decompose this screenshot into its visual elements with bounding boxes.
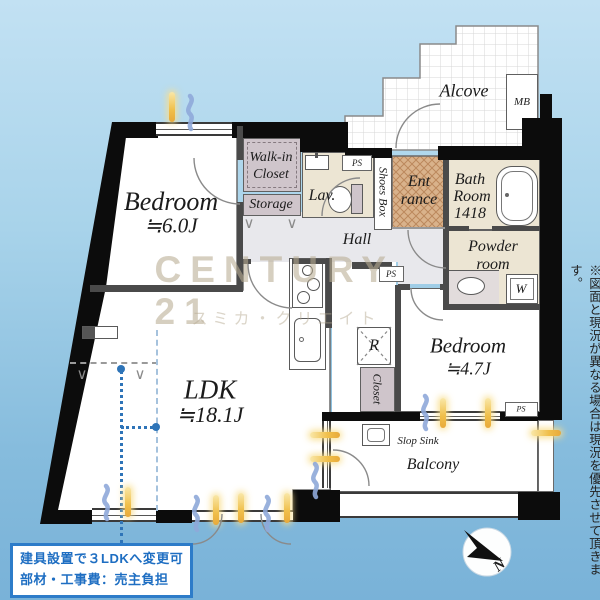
bath-label-2: Room <box>453 188 490 206</box>
future-wall-node-a <box>117 365 125 373</box>
wall-top-a <box>112 122 158 138</box>
wall-ldk-bottom <box>156 510 192 523</box>
wall-bath-left <box>443 160 449 230</box>
balcony-label: Balcony <box>407 456 459 474</box>
bathtub <box>496 166 538 226</box>
entrance-label-1: Ent <box>408 173 430 191</box>
light-icon <box>485 398 491 428</box>
storage-label: Storage <box>249 197 293 213</box>
compass-north-label: N <box>490 556 509 576</box>
lavatory-label: Lav. <box>309 187 336 205</box>
wall-balcony-top-a <box>322 412 420 421</box>
powder-label-1: Powder <box>468 238 518 256</box>
entrance-label-2: rance <box>401 191 437 209</box>
powder-basin-counter <box>447 270 499 304</box>
bedroom-second-label: Bedroom <box>430 334 506 359</box>
conversion-notice-line1: 建具設置で３LDKへ変更可 <box>20 549 183 570</box>
wall-corner-se <box>518 492 560 520</box>
hanger-mark: ∨ <box>135 365 146 383</box>
entrance-step <box>392 227 445 229</box>
disclaimer-note: ※図面と現況が異なる場合は現況を優先させて頂きます。 <box>566 264 600 600</box>
shoes-box-label: Shoes Box <box>376 167 391 217</box>
walk-in-closet-label-1: Walk-in <box>249 150 292 166</box>
bedroom-main-label: Bedroom <box>124 187 218 217</box>
light-icon <box>440 398 446 428</box>
walk-in-closet-label-2: Closet <box>253 167 289 183</box>
floor-plan: ∨ ∨ ∨ ∨ <box>0 0 600 600</box>
watermark-agency: スミカ・クリエイト <box>191 305 380 329</box>
ldk-shelf <box>82 326 118 339</box>
washer-label: W <box>516 281 527 297</box>
light-icon <box>169 92 175 122</box>
lavatory-sink <box>305 155 329 170</box>
ps-label-lavatory: PS <box>352 158 362 168</box>
wall-bedroom-main-right-a <box>237 126 243 160</box>
wall-bath-powder-b <box>492 226 540 231</box>
wall-powder-bottom <box>443 304 540 310</box>
toilet-tank <box>351 184 363 214</box>
light-icon <box>125 487 131 517</box>
balcony-parapet-bottom <box>340 492 518 518</box>
conversion-notice-line2: 部材・工事費：売主負担 <box>20 570 183 591</box>
slop-sink-label: Slop Sink <box>397 435 438 447</box>
ps-label-kitchen: PS <box>386 269 396 279</box>
powder-label-2: room <box>476 256 509 274</box>
closet-label: Closet <box>370 374 385 405</box>
ldk-size: ≒18.1J <box>177 402 244 428</box>
hanger-mark: ∨ <box>77 365 88 383</box>
ldk-label: LDK <box>184 375 237 406</box>
mb-label: MB <box>514 96 530 108</box>
door-arc-entrance <box>396 104 440 148</box>
conversion-notice-box: 建具設置で３LDKへ変更可 部材・工事費：売主負担 <box>10 543 193 598</box>
hanger-mark: ∨ <box>287 214 298 232</box>
bedroom-main-window <box>156 122 234 136</box>
light-icon <box>238 493 244 523</box>
outer-wall-left <box>40 122 128 524</box>
ps-label-bedroom: PS <box>517 405 526 414</box>
wall-top-c <box>300 122 348 152</box>
bedroom-second-size: ≒4.7J <box>445 359 491 380</box>
light-icon <box>213 495 219 525</box>
alcove-label: Alcove <box>440 81 489 102</box>
future-wall-line-vertical <box>120 370 123 544</box>
refrigerator-label: R <box>369 337 379 355</box>
light-icon <box>531 430 561 436</box>
future-wall-node-b <box>152 423 160 431</box>
wall-bath-powder-a <box>449 226 469 231</box>
hall-label: Hall <box>343 231 371 249</box>
future-closet-line <box>70 362 158 364</box>
light-icon <box>284 493 290 523</box>
slop-sink-fixture <box>362 424 390 446</box>
bedroom-main-size: ≒6.0J <box>144 214 197 239</box>
ldk-window-southwest <box>92 508 156 522</box>
wall-corner-balcony <box>293 490 340 522</box>
bath-label-3: 1418 <box>454 205 486 223</box>
future-partition-line <box>156 330 158 511</box>
hanger-mark: ∨ <box>244 214 255 232</box>
bath-label-1: Bath <box>455 171 485 189</box>
wall-right <box>540 146 562 420</box>
light-icon <box>310 456 340 462</box>
light-icon <box>310 432 340 438</box>
